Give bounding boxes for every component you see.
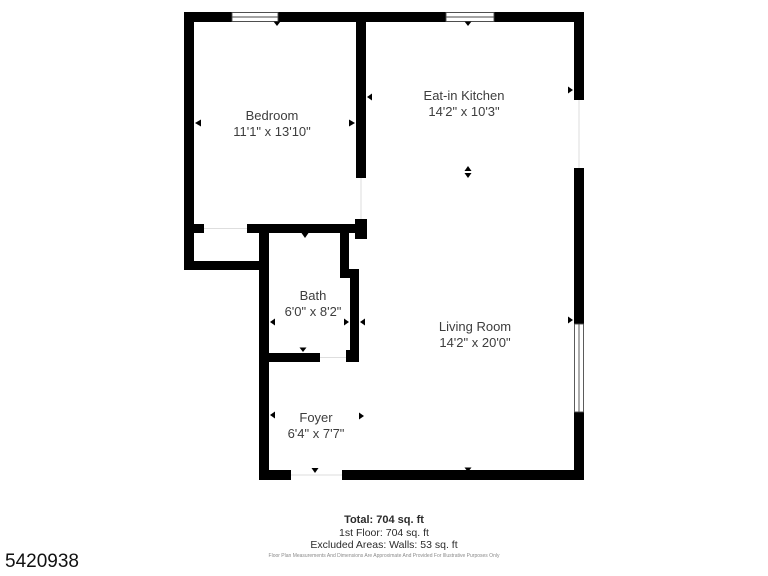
- dimension-arrow: [465, 166, 472, 171]
- dimension-arrow: [344, 319, 349, 326]
- room-name: Bath: [285, 288, 342, 304]
- walls: [184, 12, 584, 480]
- dimension-arrow: [465, 173, 472, 178]
- dimension-arrow: [367, 94, 372, 101]
- room-dimensions: 14'2" x 20'0": [439, 335, 511, 351]
- dimension-arrow: [360, 319, 365, 326]
- first-floor-area-text: 1st Floor: 704 sq. ft: [0, 527, 768, 539]
- room-label-bath: Bath 6'0" x 8'2": [285, 288, 342, 319]
- wall-right-mid: [574, 168, 584, 324]
- dimension-arrow: [312, 468, 319, 473]
- dimension-arrow: [274, 22, 281, 27]
- excluded-areas-text: Excluded Areas: Walls: 53 sq. ft: [0, 539, 768, 551]
- dimension-arrow: [465, 22, 472, 27]
- wall-bath-right-lower: [350, 269, 359, 355]
- disclaimer-text: Floor Plan Measurements And Dimensions A…: [0, 553, 768, 559]
- room-label-bedroom: Bedroom 11'1" x 13'10": [233, 108, 311, 139]
- dimension-arrows: [195, 22, 573, 474]
- wall-hall-left: [259, 224, 269, 480]
- room-dimensions: 6'4" x 7'7": [288, 426, 345, 442]
- dimension-arrow: [359, 413, 364, 420]
- dimension-arrow: [349, 120, 355, 127]
- room-name: Living Room: [439, 319, 511, 335]
- wall-right-bottom: [574, 412, 584, 480]
- wall-bedroom-bottom-stub: [194, 224, 204, 233]
- wall-right-top: [574, 12, 584, 100]
- wall-bedroom-kitchen-divider: [356, 12, 366, 178]
- dimension-arrow: [270, 412, 275, 419]
- room-label-foyer: Foyer 6'4" x 7'7": [288, 410, 345, 441]
- listing-id: 5420938: [5, 551, 79, 573]
- dimension-arrow: [568, 317, 573, 324]
- dimension-arrow: [568, 87, 573, 94]
- wall-closet-bottom: [184, 261, 269, 270]
- room-label-living-room: Living Room 14'2" x 20'0": [439, 319, 511, 350]
- floorplan-page: Bedroom 11'1" x 13'10" Eat-in Kitchen 14…: [0, 0, 768, 576]
- windows: [232, 13, 584, 413]
- wall-bottom-left: [259, 470, 291, 480]
- room-dimensions: 14'2" x 10'3": [424, 104, 505, 120]
- room-dimensions: 11'1" x 13'10": [233, 124, 311, 140]
- wall-left: [184, 12, 194, 270]
- wall-bath-bottom: [266, 353, 320, 362]
- wall-bath-right-cap: [346, 350, 359, 362]
- total-area-text: Total: 704 sq. ft: [0, 514, 768, 526]
- wall-bottom-main: [342, 470, 584, 480]
- room-name: Bedroom: [233, 108, 311, 124]
- dimension-arrow: [302, 233, 309, 238]
- room-name: Foyer: [288, 410, 345, 426]
- floorplan-drawing: [0, 0, 768, 576]
- dimension-arrow: [300, 348, 307, 353]
- room-name: Eat-in Kitchen: [424, 88, 505, 104]
- dimension-arrow: [195, 120, 201, 127]
- room-dimensions: 6'0" x 8'2": [285, 304, 342, 320]
- room-label-eat-in-kitchen: Eat-in Kitchen 14'2" x 10'3": [424, 88, 505, 119]
- dimension-arrow: [270, 319, 275, 326]
